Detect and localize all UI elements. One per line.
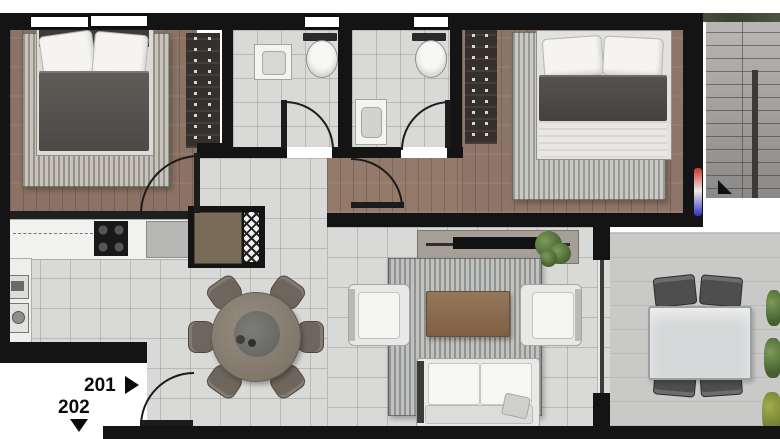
plant-icon bbox=[540, 250, 557, 267]
dining-table bbox=[211, 292, 301, 382]
bed-1 bbox=[36, 26, 154, 156]
wardrobe-1-knobs bbox=[208, 37, 211, 144]
arrow-right-icon bbox=[125, 376, 139, 394]
sofa-side bbox=[417, 361, 424, 423]
window bbox=[30, 15, 89, 29]
armchair-shadow bbox=[349, 289, 355, 341]
dining-table-item bbox=[236, 335, 245, 344]
sofa bbox=[416, 358, 540, 428]
wall-bath1-bath2 bbox=[338, 13, 352, 158]
wardrobe-2-knobs bbox=[485, 34, 488, 140]
corridor-door-leaf bbox=[351, 202, 404, 208]
kitchen-cooktop bbox=[94, 221, 128, 256]
bed-2-pillow-right bbox=[602, 35, 664, 78]
bathroom-1-vanity bbox=[254, 44, 292, 80]
sliding-glass-door bbox=[598, 260, 604, 393]
bed-2 bbox=[536, 30, 672, 160]
wardrobe-2-knobs bbox=[472, 34, 475, 140]
bed-1-duvet bbox=[39, 71, 149, 151]
stairs-handrail bbox=[752, 70, 758, 198]
arrow-down-icon bbox=[70, 419, 88, 432]
floor-plan: 201 202 bbox=[0, 0, 780, 439]
wardrobe-1-knobs bbox=[194, 37, 197, 144]
bathroom-1-sink bbox=[262, 51, 286, 75]
washer-drum bbox=[12, 311, 25, 324]
wall-bottom bbox=[103, 426, 780, 439]
balcony-table bbox=[648, 306, 752, 380]
wall-bath2-bed2 bbox=[450, 13, 462, 158]
wardrobe-1 bbox=[186, 33, 220, 148]
toilet-1-bowl bbox=[306, 40, 338, 78]
armchair-right bbox=[520, 284, 582, 346]
bed-2-blanket bbox=[539, 75, 667, 121]
stairs-stringer bbox=[742, 20, 743, 198]
balcony-chair bbox=[653, 274, 698, 308]
bathroom-2-door-leaf bbox=[445, 100, 451, 148]
armchair-cushion bbox=[358, 292, 400, 339]
wall-corridor-living bbox=[327, 213, 703, 227]
wardrobe-2 bbox=[465, 30, 497, 144]
window bbox=[90, 14, 148, 28]
oven-door bbox=[11, 281, 24, 291]
wall-balcony-stub-bottom bbox=[593, 393, 610, 428]
kitchen-washer bbox=[7, 303, 29, 333]
armchair-cushion bbox=[532, 292, 574, 339]
stairs bbox=[706, 20, 780, 198]
wall-color-marker bbox=[694, 168, 702, 216]
shaft-cabinet bbox=[194, 212, 242, 264]
bed-2-pillow-left bbox=[542, 35, 605, 79]
toilet-2-bowl bbox=[415, 40, 447, 78]
balcony-chair bbox=[699, 274, 743, 308]
kitchen-counter-dash bbox=[13, 233, 93, 234]
dining-table-item bbox=[248, 339, 256, 347]
shaft-duct-hatch bbox=[244, 212, 259, 262]
wall-bed1-bath1 bbox=[222, 13, 233, 158]
bed-2-duvet bbox=[539, 121, 667, 157]
wall-balcony-stub-top bbox=[593, 227, 610, 260]
window bbox=[304, 15, 340, 29]
hedge bbox=[700, 13, 780, 22]
kitchen-counter-top bbox=[4, 219, 190, 260]
label-201: 201 bbox=[84, 376, 116, 395]
bathroom-2-vanity bbox=[355, 99, 387, 145]
utility-shaft bbox=[188, 206, 265, 268]
wall-baths-south-a bbox=[222, 147, 287, 158]
kitchen-oven bbox=[7, 275, 29, 299]
sofa-seat bbox=[428, 363, 480, 405]
dining-centerpiece bbox=[234, 311, 280, 357]
stairs-direction-arrow-icon bbox=[718, 180, 732, 194]
armchair-left bbox=[348, 284, 410, 346]
coffee-table bbox=[426, 291, 510, 337]
balcony-plant-icon bbox=[764, 338, 780, 378]
kitchen-fridge bbox=[146, 221, 189, 258]
window bbox=[413, 15, 449, 29]
entry-door-leaf bbox=[140, 420, 193, 426]
balcony-plant-icon bbox=[766, 290, 780, 326]
label-202: 202 bbox=[58, 398, 90, 417]
armchair-shadow bbox=[575, 289, 581, 341]
bathroom-1-door-leaf bbox=[281, 100, 287, 148]
bathroom-2-sink bbox=[361, 107, 382, 138]
bedroom-1-door-leaf bbox=[194, 153, 200, 213]
wall-left bbox=[0, 13, 10, 363]
